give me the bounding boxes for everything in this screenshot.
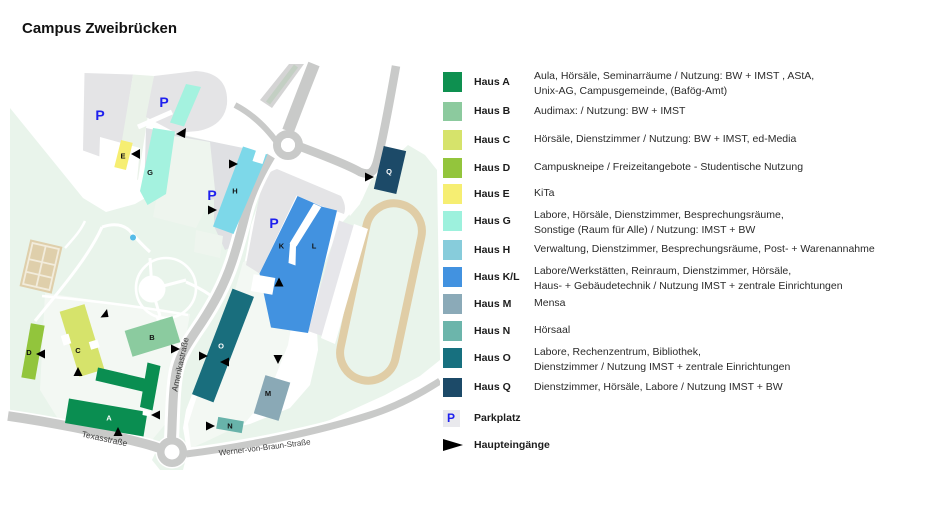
svg-text:B: B [149, 333, 155, 342]
svg-text:P: P [269, 215, 278, 231]
svg-text:K: K [279, 242, 285, 251]
svg-text:P: P [95, 107, 104, 123]
svg-text:A: A [106, 414, 112, 423]
svg-text:G: G [147, 168, 153, 177]
svg-text:D: D [26, 348, 32, 357]
svg-text:P: P [159, 94, 168, 110]
svg-text:P: P [207, 187, 216, 203]
svg-text:O: O [218, 342, 224, 351]
svg-text:H: H [232, 187, 237, 196]
svg-text:Q: Q [386, 167, 392, 176]
svg-text:C: C [75, 346, 81, 355]
svg-text:N: N [227, 422, 232, 431]
svg-text:E: E [120, 152, 125, 161]
svg-text:L: L [312, 242, 317, 251]
svg-text:M: M [265, 389, 271, 398]
